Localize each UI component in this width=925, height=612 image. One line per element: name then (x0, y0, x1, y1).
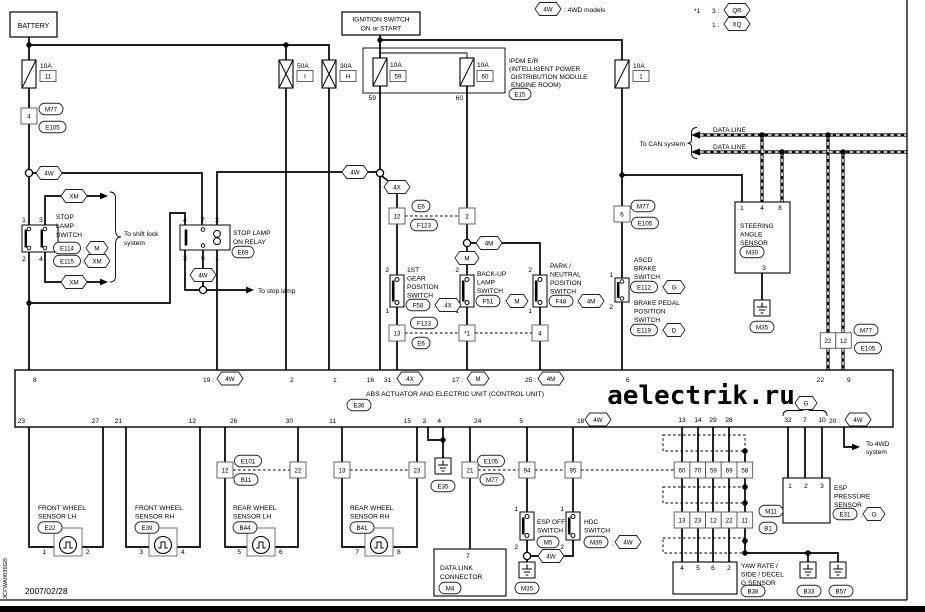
to-4wd-line1: To 4WD (866, 441, 890, 448)
abs-18-4w-hex-label: 4W (593, 417, 602, 424)
abs-top-pin-1: 1 (333, 377, 337, 384)
conn-pin-6-label: 6 (620, 211, 624, 218)
conn-m77-c-label: M77 (860, 327, 873, 334)
f51-m-hex-label: M (514, 298, 519, 305)
branch-m-hex-label: M (464, 255, 469, 262)
grid-cell-11-label: 11 (742, 517, 749, 524)
fuse11-id-label: 11 (45, 73, 52, 80)
abs-g-hex-label: G (804, 400, 809, 407)
conn-f51-label: F51 (483, 298, 494, 305)
grid-cell-12-label: 12 (710, 517, 717, 524)
abs-top-pin-25: 25 : (525, 377, 536, 384)
stoplamp-sw-pin4: 4 (39, 256, 43, 263)
hdc-line2: SWITCH (584, 528, 610, 535)
abs-top-pin-8: 8 (33, 377, 37, 384)
ground-e35-icon (435, 458, 451, 474)
espsw-pin2: 2 (514, 544, 518, 551)
conn-f48-label: F48 (556, 298, 567, 305)
legend-4w-hex-label: 4W (543, 6, 552, 13)
fuse-link-50a-icon (279, 60, 293, 88)
dlc-pin7: 7 (466, 553, 470, 560)
f58-4x-hex-label: 4X (444, 302, 452, 309)
conn-pin-4b-label: 4 (538, 330, 542, 337)
esp-4w-hex-label: 4W (546, 553, 555, 560)
abs-bot-pin-3: 3 (422, 418, 426, 425)
conn-m77-b-label: M77 (637, 203, 650, 210)
abs-wiring-schematic: : 4WD models*13 :1 :BATTERYIGNITION SWIT… (0, 0, 925, 612)
legend-qr-prefix: 3 : (712, 8, 719, 15)
legend-xq-hex-label: XQ (733, 21, 742, 28)
esps-colon: : (861, 512, 863, 519)
can-arrow-1 (691, 131, 700, 138)
abs-bot-pin-15: 15 (404, 418, 412, 425)
conn-b11-label: B11 (241, 477, 252, 484)
conn-e35-label: E35 (437, 483, 449, 490)
stoplamp-sw-colon1: : (83, 246, 85, 253)
abs-top-pin-17: 17 : (452, 377, 463, 384)
abs-top-pin-16: 16 (367, 377, 375, 384)
grid-cell-70-label: 70 (694, 467, 701, 474)
conn-b57-label: B57 (835, 588, 847, 595)
abs-bot-pin-7: 7 (803, 417, 807, 424)
grid-cell-59-label: 59 (710, 467, 717, 474)
abs-bot-pin-27: 27 (92, 418, 100, 425)
park-sw-line2: NEUTRAL (550, 272, 581, 279)
grid-cell-58-label: 58 (741, 467, 748, 474)
stoplamp-sw-line3: SWITCH (56, 232, 82, 239)
espsw-line2: SWITCH (537, 528, 563, 535)
shield-box-1 (663, 435, 745, 451)
fuse60-amp: 10A (477, 62, 489, 69)
grid-cell-69-label: 69 (726, 467, 733, 474)
ascd-colon: : (661, 285, 663, 292)
conn-m4-label: M4 (446, 585, 455, 592)
ascd-brake-switch-icon (615, 278, 629, 302)
bpp-line2: POSITION (634, 309, 666, 316)
conn-e22-label: E22 (44, 525, 56, 532)
conn-e105-b-label: E105 (638, 220, 653, 227)
relay-pin6: 6 (201, 255, 205, 262)
abs-bot-pin-11: 11 (329, 418, 336, 425)
conn-pin-13r-label: 13 (339, 467, 346, 474)
park-sw-line1: PARK / (550, 263, 571, 270)
yaw-line2: SIDE / DECEL (741, 572, 784, 579)
to-4wd-line2: system (866, 449, 887, 456)
shiftlock-arrow-top (100, 193, 108, 200)
e114-m-hex-label: M (94, 245, 99, 252)
conn-e69-label: E69 (237, 249, 249, 256)
ascd-pin1: 1 (609, 272, 613, 279)
fuse50-id-label: I (304, 73, 306, 80)
rrh-line1: REAR WHEEL (350, 505, 394, 512)
ground-b57-icon (830, 562, 846, 578)
conn-e101-label: E101 (241, 458, 256, 465)
esps-line2: PRESSURE (834, 494, 871, 501)
backup-sw-colon: : (504, 299, 506, 306)
flh-pin1: 1 (42, 549, 46, 556)
espsw-line1: ESP OFF (537, 519, 565, 526)
stop-lamp-relay-icon (180, 225, 230, 250)
steer-pin8: 8 (778, 205, 782, 212)
abs-bot-pin-30: 30 (286, 418, 294, 425)
abs-bot-pin-24: 24 (474, 418, 482, 425)
ign-4w-hex-label: 4W (350, 169, 359, 176)
legend-qr-hex-label: QR (732, 7, 742, 14)
steer-line2: ANGLE (740, 232, 763, 239)
conn-pin-22can-label: 22 (825, 338, 832, 345)
abs-bot-pin-13: 13 (678, 417, 686, 424)
conn-e6-b-label: E6 (417, 340, 425, 347)
bottom-bar (0, 606, 925, 612)
backup-sw-line2: LAMP (477, 280, 496, 287)
abs-bot-pin-23: 23 (18, 418, 26, 425)
rlh-line1: REAR WHEEL (233, 505, 277, 512)
can-line1-label: DATA LINE (713, 127, 746, 134)
relay-pin7: 7 (201, 217, 205, 224)
bpp-colon: : (661, 328, 663, 335)
conn-e112-label: E112 (637, 284, 652, 291)
legend-4wd-note: : 4WD models (564, 7, 606, 14)
conn-f58-label: F58 (413, 302, 424, 309)
steer-pin4: 4 (760, 205, 764, 212)
conn-b38-label: B38 (747, 588, 759, 595)
conn-pin-4-label: 4 (27, 113, 31, 120)
conn-pin-12r-label: 12 (222, 467, 229, 474)
can-arrow-2 (691, 148, 700, 155)
diagram-date: 2007/02/28 (25, 586, 68, 596)
fuse60-id-label: 60 (482, 73, 489, 80)
branch-4x-hex-label: 4X (393, 184, 401, 191)
conn-m35-a-label: M35 (756, 324, 769, 331)
hdc-pin2: 2 (560, 544, 564, 551)
conn-e15-label: E15 (514, 91, 526, 98)
relay-pin2: 2 (215, 217, 219, 224)
frh-pin3: 3 (139, 549, 143, 556)
conn-m39-label: M39 (590, 539, 603, 546)
fuse-10a-11-icon (22, 60, 36, 88)
ipdm-pin60: 60 (456, 95, 464, 102)
fuse59-amp: 10A (390, 62, 402, 69)
conn-e114-label: E114 (60, 245, 75, 252)
fuse59-id-label: 59 (395, 73, 402, 80)
wire-backup-park (467, 86, 540, 370)
conn-pin-12can-label: 12 (840, 338, 847, 345)
gear-sw-line2: GEAR (407, 276, 426, 283)
stop-lamp-arrow (246, 287, 254, 294)
stoplamp-sw-pin2: 2 (22, 256, 26, 263)
can-dest: To CAN system (640, 141, 686, 148)
ipdm-line3: DISTRIBUTION MODULE (511, 74, 588, 81)
watermark: aelectrik.ru (607, 381, 795, 411)
abs-bot-pin-29: 29 (709, 417, 717, 424)
conn-m35-b-label: M35 (521, 585, 534, 592)
conn-m11-label: M11 (765, 508, 777, 515)
ground-b33-icon (800, 562, 816, 578)
ascd-line2: BRAKE (634, 266, 657, 273)
esps-pin3: 3 (820, 483, 824, 490)
yaw-pin5: 5 (696, 565, 700, 572)
abs-bot-pin-20: 20 : (829, 418, 840, 425)
fuse30-id-label: H (346, 73, 350, 80)
conn-e39-label: E39 (141, 525, 153, 532)
xm-top-hex-label: XM (69, 193, 78, 200)
abs-17-m-hex-label: M (475, 376, 480, 383)
doc-code: JCFWA0035GB (3, 558, 9, 599)
fuse50-amp: 50A (297, 63, 309, 70)
wire-esp-sensor-4wd (788, 427, 852, 478)
conn-m77-a-label: M77 (45, 106, 58, 113)
park-sw-line3: POSITION (550, 280, 582, 287)
conn-m77-d-label: M77 (486, 477, 499, 484)
to-stop-lamp: To stop lamp (258, 288, 296, 295)
espsw-pin1: 1 (514, 506, 518, 513)
frh-line1: FRONT WHEEL (135, 505, 183, 512)
legend-star1: *1 (694, 8, 701, 15)
yaw-pin4: 4 (680, 565, 684, 572)
dlc-line2: CONNECTOR (440, 574, 483, 581)
ignition-line2: ON or START (361, 26, 401, 33)
wires-thin (380, 53, 467, 58)
shiftlock-line2: system (124, 240, 145, 247)
shield-box-2 (663, 487, 745, 503)
shiftlock-line1: To shift lock (124, 231, 159, 238)
conn-f123-b-label: F123 (417, 320, 432, 327)
gear-sw-line4: SWITCH (407, 293, 433, 300)
relay-pin4: 4 (183, 217, 187, 224)
shiftlock-arrow-bot (100, 279, 108, 286)
conn-e105-d-label: E105 (484, 458, 499, 465)
shiftlock-brace (110, 192, 121, 282)
relay-pin1: 1 (215, 255, 219, 262)
rlh-pin5: 5 (237, 549, 241, 556)
frh-line2: SENSOR RH (135, 514, 174, 521)
stoplamp-sw-pin3: 3 (39, 217, 43, 224)
xm-bot-hex-label: XM (69, 279, 78, 286)
ipdm-line1: IPDM E/R (509, 58, 539, 65)
backup-sw-line1: BACK-UP (477, 271, 507, 278)
abs-bot-pin-28: 28 (725, 417, 733, 424)
conn-pin-21-label: 21 (467, 467, 474, 474)
conn-e31-label: E31 (839, 511, 851, 518)
conn-e36-label: E36 (353, 402, 365, 409)
frh-pin4: 4 (181, 549, 185, 556)
splice-circles (25, 169, 530, 559)
hdc-pin1: 1 (560, 506, 564, 513)
hdc-line1: HDC (584, 519, 599, 526)
conn-m30-label: M30 (746, 249, 759, 256)
rlh-line2: SENSOR LH (233, 514, 271, 521)
gear-sw-line1: 1ST (407, 267, 419, 274)
can-line2-label: DATA LINE (713, 144, 746, 151)
abs-bot-pin-5: 5 (519, 418, 523, 425)
abs-bot-pin-12: 12 (189, 418, 197, 425)
ignition-line1: IGNITION SWITCH (352, 17, 409, 24)
yaw-line1: YAW RATE / (741, 563, 778, 570)
conn-e115-label: E115 (60, 258, 75, 265)
conn-pin-12a-label: 12 (394, 213, 401, 220)
esp-off-switch-icon (520, 512, 534, 540)
abs-top-pin-9: 9 (847, 377, 851, 384)
rrh-line2: SENSOR RH (350, 514, 389, 521)
f48-4m-hex-label: 4M (587, 298, 596, 305)
conn-pin-star1-label: *1 (464, 330, 470, 337)
bpp-line1: BRAKE PEDAL (634, 300, 680, 307)
flh-pin2: 2 (86, 549, 90, 556)
battery-label: BATTERY (18, 23, 50, 30)
abs-top-pin-31: 31 : (384, 377, 395, 384)
abs-19-4w-hex-label: 4W (225, 376, 234, 383)
backup-lamp-switch-icon (460, 275, 474, 307)
abs-20-4w-hex-label: 4W (853, 417, 862, 424)
ground-m35-esp-icon (519, 562, 535, 578)
conn-b44-label: B44 (239, 525, 251, 532)
stoplamp-sw-pin1: 1 (22, 217, 26, 224)
bpp-line3: SWITCH (634, 317, 660, 324)
abs-title: ABS ACTUATOR AND ELECTRIC UNIT (CONTROL … (366, 391, 544, 398)
abs-bot-pin-4: 4 (437, 418, 441, 425)
park-sw-pin2: 2 (528, 267, 532, 274)
grid-cell-60-label: 60 (679, 467, 686, 474)
gear-sw-line3: POSITION (407, 284, 439, 291)
conn-pin-13a-label: 13 (394, 330, 401, 337)
backup-sw-pin2: 2 (455, 267, 459, 274)
conn-pin-2-label: 2 (465, 213, 469, 220)
fuse-link-30a-icon (322, 60, 336, 88)
yaw-pin2: 2 (727, 565, 731, 572)
wiring-diagram-page: : 4WD models*13 :1 :BATTERYIGNITION SWIT… (0, 0, 925, 612)
conn-pin-94-label: 94 (524, 467, 531, 474)
e115-xm-hex-label: XM (92, 258, 101, 265)
relay-4w-hex-label: 4W (198, 272, 207, 279)
yaw-pin6: 6 (711, 565, 715, 572)
abs-top-pin-2: 2 (290, 377, 294, 384)
legend-xq-prefix: 1 : (712, 22, 719, 29)
ascd-line1: ASCD (634, 257, 653, 264)
park-sw-pin1: 1 (528, 308, 532, 315)
fuse1-amp: 10A (633, 63, 645, 70)
dlc-line1: DATA LINK (440, 565, 473, 572)
relay-line1: STOP LAMP (233, 230, 271, 237)
flh-line2: SENSOR LH (38, 514, 76, 521)
conn-pin-23r-label: 23 (414, 467, 421, 474)
gear-sw-pin1: 1 (385, 308, 389, 315)
e112-g-hex-label: G (672, 284, 677, 291)
conn-f123-a-label: F123 (417, 222, 432, 229)
ascd-pin2: 2 (609, 304, 613, 311)
relay-line2: ON RELAY (233, 239, 266, 246)
gear-sw-pin2: 2 (385, 267, 389, 274)
hdc-switch-icon (566, 512, 580, 540)
shield-box-3 (663, 538, 745, 553)
battery-4w-hex-label: 4W (44, 170, 53, 177)
fuse11-amp: 10A (40, 63, 52, 70)
fuse-10a-59-icon (373, 58, 387, 86)
conn-b33-label: B33 (803, 588, 815, 595)
conn-e105-a-label: E105 (45, 124, 60, 131)
park-sw-line4: SWITCH (550, 289, 576, 296)
fuse1-id-label: 1 (639, 73, 643, 80)
gear-position-switch-icon (390, 275, 404, 307)
park-neutral-switch-icon (533, 275, 547, 307)
relay-pin3: 3 (183, 255, 187, 262)
abs-bot-pin-10: 10 (818, 417, 826, 424)
esps-pin1: 1 (788, 483, 792, 490)
ground-m35-steer-icon (754, 300, 770, 316)
ipdm-pin59: 59 (369, 95, 377, 102)
stop-lamp-switch-icon (22, 225, 58, 252)
grid-cell-13-label: 13 (679, 517, 686, 524)
abs-top-pin-19: 19 : (203, 377, 214, 384)
conn-b41-label: B41 (356, 525, 368, 532)
rrh-pin7: 7 (355, 549, 359, 556)
conn-e6-a-label: E6 (417, 203, 425, 210)
can-brace (688, 128, 698, 159)
steer-pin3: 3 (762, 265, 766, 272)
conn-m5-label: M5 (544, 539, 553, 546)
backup-sw-line3: SWITCH (477, 288, 503, 295)
abs-top-pin-22: 22 (817, 377, 825, 384)
conn-e105-c-label: E105 (861, 345, 876, 352)
branch-4m-hex-label: 4M (485, 240, 494, 247)
abs-bot-pin-14: 14 (694, 417, 702, 424)
grid-cell-23-label: 23 (694, 517, 701, 524)
conn-pin-22r-label: 22 (295, 467, 302, 474)
esps-g-hex-label: G (872, 511, 877, 518)
fuse-10a-1-icon (615, 60, 629, 88)
stoplamp-sw-line1: STOP (56, 214, 74, 221)
abs-bot-pin-26: 26 (230, 418, 238, 425)
fuse-10a-60-icon (460, 58, 474, 86)
to-4wd-arrow (852, 444, 860, 451)
steer-pin1: 1 (740, 205, 744, 212)
abs-bot-pin-21: 21 (115, 418, 123, 425)
e119-d-hex-label: D (672, 327, 677, 334)
esps-line1: ESP (834, 485, 848, 492)
rlh-pin6: 6 (279, 549, 283, 556)
hdc-colon: : (612, 540, 614, 547)
hdc-4w-hex-label: 4W (623, 539, 632, 546)
grid-cell-22-label: 22 (726, 517, 733, 524)
abs-bot-pin-32: 32 (784, 417, 792, 424)
flh-line1: FRONT WHEEL (38, 505, 86, 512)
abs-25-4m-hex-label: 4M (547, 376, 556, 383)
abs-31-4x-hex-label: 4X (406, 376, 414, 383)
steer-line1: STEERING (740, 223, 774, 230)
stoplamp-sw-line2: LAMP (56, 223, 75, 230)
fuse30-amp: 30A (340, 63, 352, 70)
conn-pin-95-label: 95 (570, 467, 577, 474)
conn-b1-label: B1 (764, 525, 772, 532)
rrh-pin8: 8 (397, 549, 401, 556)
ipdm-line2: (INTELLIGENT POWER (509, 66, 581, 73)
ipdm-internal-bus (380, 53, 467, 58)
esps-pin2: 2 (804, 483, 808, 490)
conn-e119-label: E119 (637, 327, 652, 334)
ascd-line3: SWITCH (634, 274, 660, 281)
